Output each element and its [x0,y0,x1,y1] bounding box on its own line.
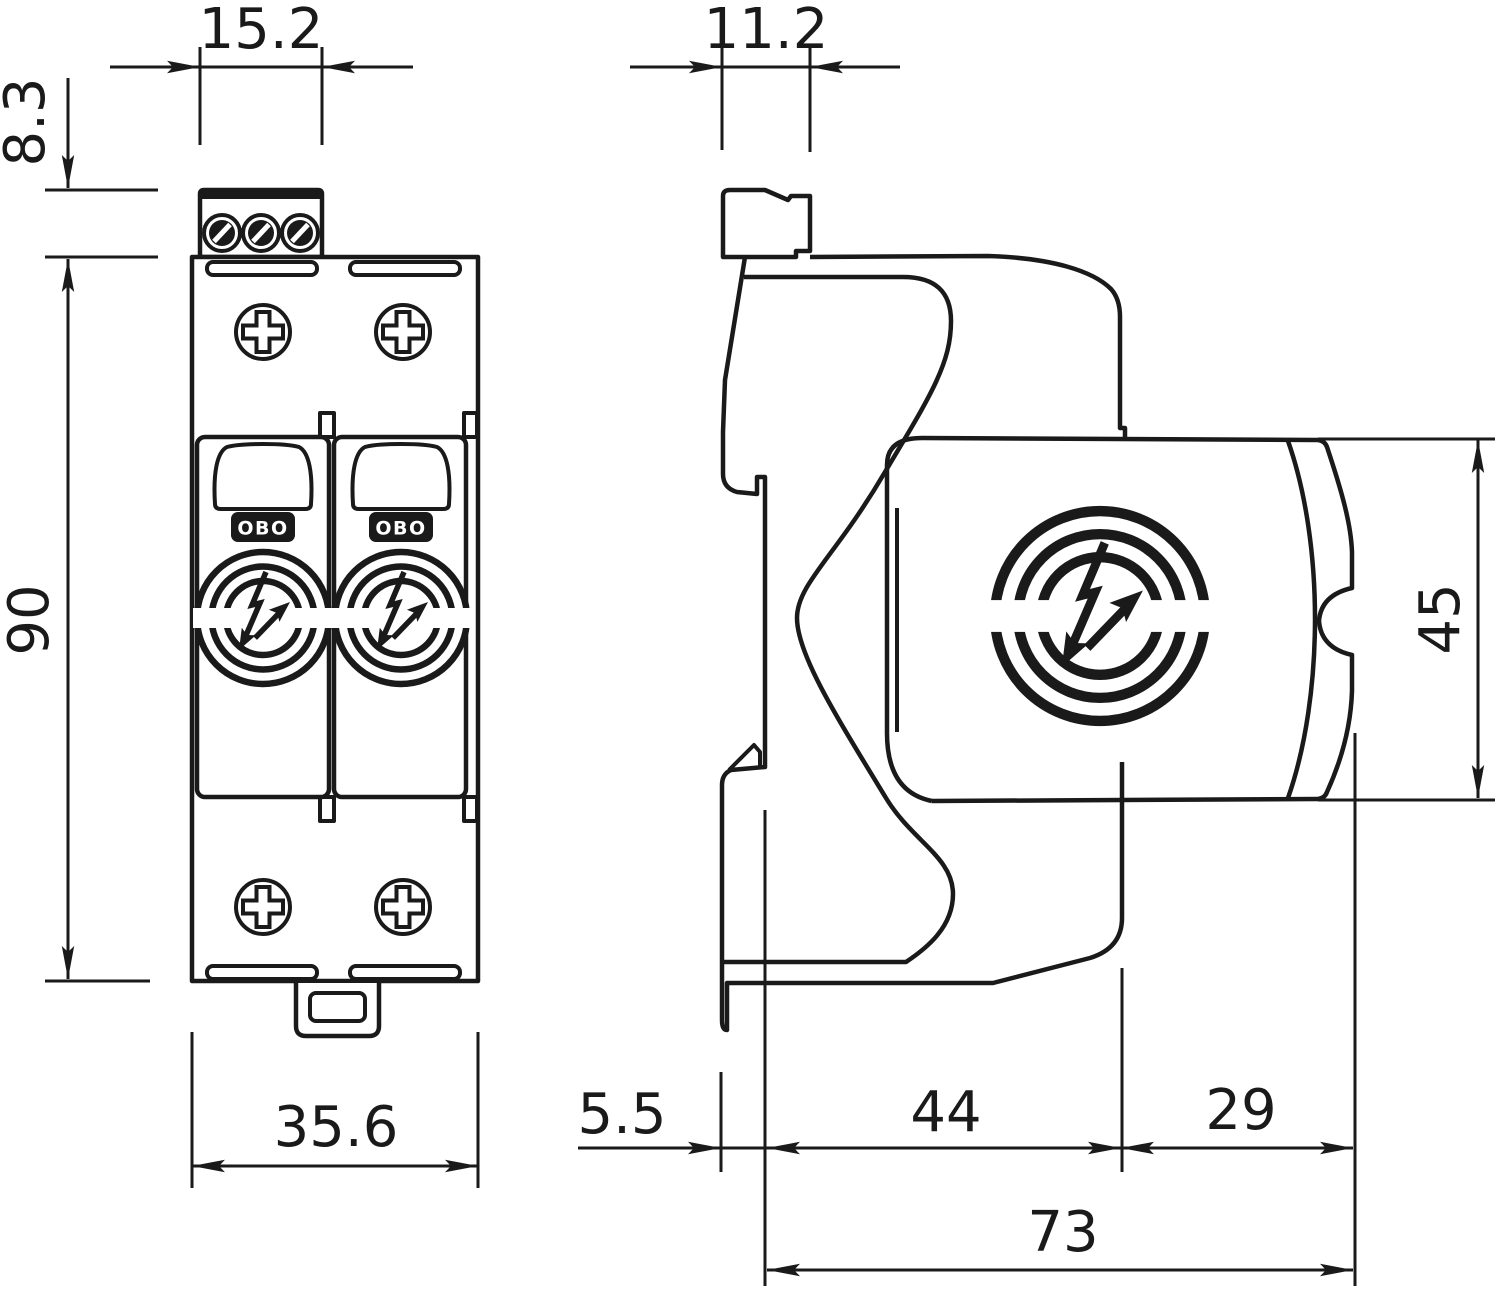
side-plug-module [887,438,1352,801]
rail-channel-contour [722,277,953,962]
dim-front-body-height: 90 [0,584,62,655]
module-front-face-inner [1288,441,1315,798]
din-rail-clip [296,983,379,1036]
phillips-screw-icon [376,880,430,934]
module-latch-tab [320,413,334,437]
vent-slot [207,966,317,979]
terminal-screw-icon [243,215,279,251]
side-body-left-and-bottom [722,257,1122,1030]
label-window [215,444,312,509]
brand-label: OBO [237,518,288,540]
dim-front-terminal-height: 8.3 [0,77,58,166]
dimension-drawing: OBO OBO [0,0,1500,1294]
phillips-screw-icon [236,305,290,359]
label-window [353,444,450,509]
drawing-canvas: OBO OBO [0,0,1500,1294]
obo-logo: OBO [369,512,433,542]
phillips-screw-icon [376,305,430,359]
terminal-screw-icon [204,215,240,251]
dim-side-base-depth: 44 [910,1080,981,1145]
side-view [722,190,1352,1030]
dim-side-terminal-width: 11.2 [704,0,829,62]
vent-slot [350,262,460,275]
dim-side-rail-clip-offset: 5.5 [577,1082,666,1147]
dim-side-module-height: 45 [1408,583,1473,654]
vent-slot [350,966,460,979]
side-body-top [810,256,1125,437]
dim-front-body-width: 35.6 [274,1095,399,1160]
terminal-screw-icon [282,215,318,251]
front-view: OBO OBO [192,190,478,1036]
vent-slot [207,262,317,275]
side-terminal-block [723,190,810,257]
front-terminal-block [200,190,322,257]
phillips-screw-icon [236,880,290,934]
module-front-face-outer [1318,440,1352,799]
module-latch-tab [464,413,477,437]
brand-label: OBO [375,518,426,540]
obo-logo: OBO [231,512,295,542]
dim-side-total-depth: 73 [1027,1200,1098,1265]
surge-lightning-logo-icon [989,511,1212,721]
module-latch-tab [464,797,477,821]
dim-front-terminal-width: 15.2 [199,0,324,62]
terminal-top-band [201,190,321,199]
module-latch-tab [320,797,334,821]
dim-side-module-depth: 29 [1205,1078,1276,1143]
